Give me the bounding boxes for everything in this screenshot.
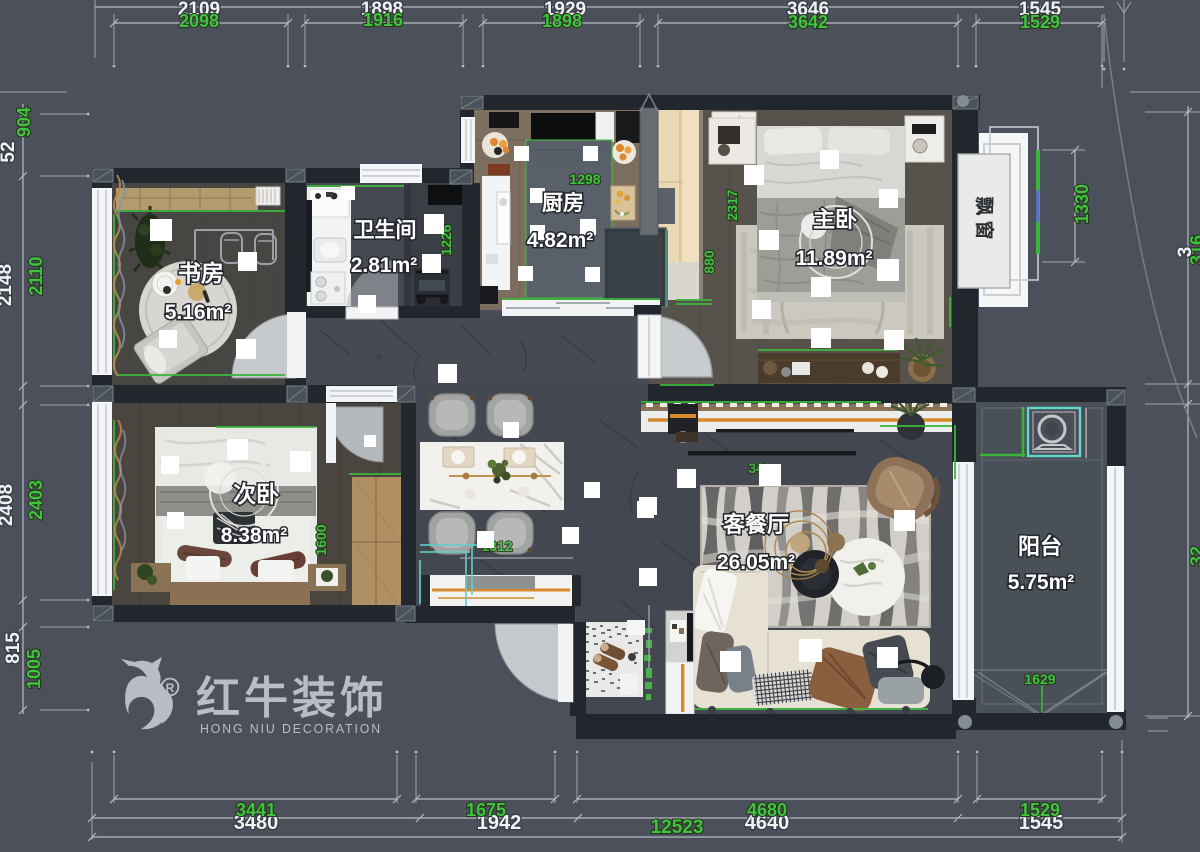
svg-text:1675: 1675 [466,800,506,820]
svg-text:卫生间: 卫生间 [354,218,417,242]
svg-text:1298: 1298 [569,171,600,187]
svg-text:红牛装饰: 红牛装饰 [196,674,388,723]
svg-text:815: 815 [3,632,24,664]
svg-text:飘: 飘 [973,196,995,215]
svg-text:1916: 1916 [363,10,403,30]
svg-text:HONG NIU DECORATION: HONG NIU DECORATION [200,721,382,736]
svg-text:2.81m²: 2.81m² [351,254,418,277]
svg-text:5.75m²: 5.75m² [1008,571,1075,594]
svg-text:1629: 1629 [1024,671,1055,687]
svg-text:2110: 2110 [26,256,46,295]
svg-text:2148: 2148 [0,264,16,306]
svg-text:2403: 2403 [26,480,46,520]
svg-text:窗: 窗 [973,220,996,239]
svg-text:主卧: 主卧 [813,207,857,232]
svg-text:1529: 1529 [1020,800,1060,820]
svg-text:26.05m²: 26.05m² [717,551,795,574]
svg-text:8.38m²: 8.38m² [221,524,288,547]
svg-text:书房: 书房 [178,260,224,286]
svg-text:3642: 3642 [788,12,828,32]
svg-text:4.82m²: 4.82m² [527,229,594,252]
svg-text:2408: 2408 [0,484,17,526]
svg-text:5.16m²: 5.16m² [165,301,232,324]
svg-text:1330: 1330 [1072,184,1092,224]
svg-text:阳台: 阳台 [1018,534,1062,559]
svg-text:次卧: 次卧 [233,481,279,507]
svg-text:880: 880 [701,250,717,274]
svg-text:1529: 1529 [1020,12,1060,32]
svg-text:客餐厅: 客餐厅 [723,512,789,537]
svg-text:3441: 3441 [236,800,276,820]
svg-text:904: 904 [14,107,34,137]
svg-text:1005: 1005 [24,649,44,689]
svg-text:32: 32 [1187,546,1200,566]
svg-text:4680: 4680 [747,800,787,820]
svg-text:2317: 2317 [724,189,740,220]
svg-text:3: 3 [1175,247,1196,258]
svg-text:2098: 2098 [179,11,219,31]
svg-text:1898: 1898 [542,11,582,31]
svg-text:11.89m²: 11.89m² [795,247,872,270]
svg-text:厨房: 厨房 [542,191,584,215]
svg-text:12523: 12523 [651,817,704,838]
svg-text:52: 52 [0,141,19,162]
svg-text:R: R [166,681,175,695]
svg-text:1600: 1600 [313,524,329,555]
